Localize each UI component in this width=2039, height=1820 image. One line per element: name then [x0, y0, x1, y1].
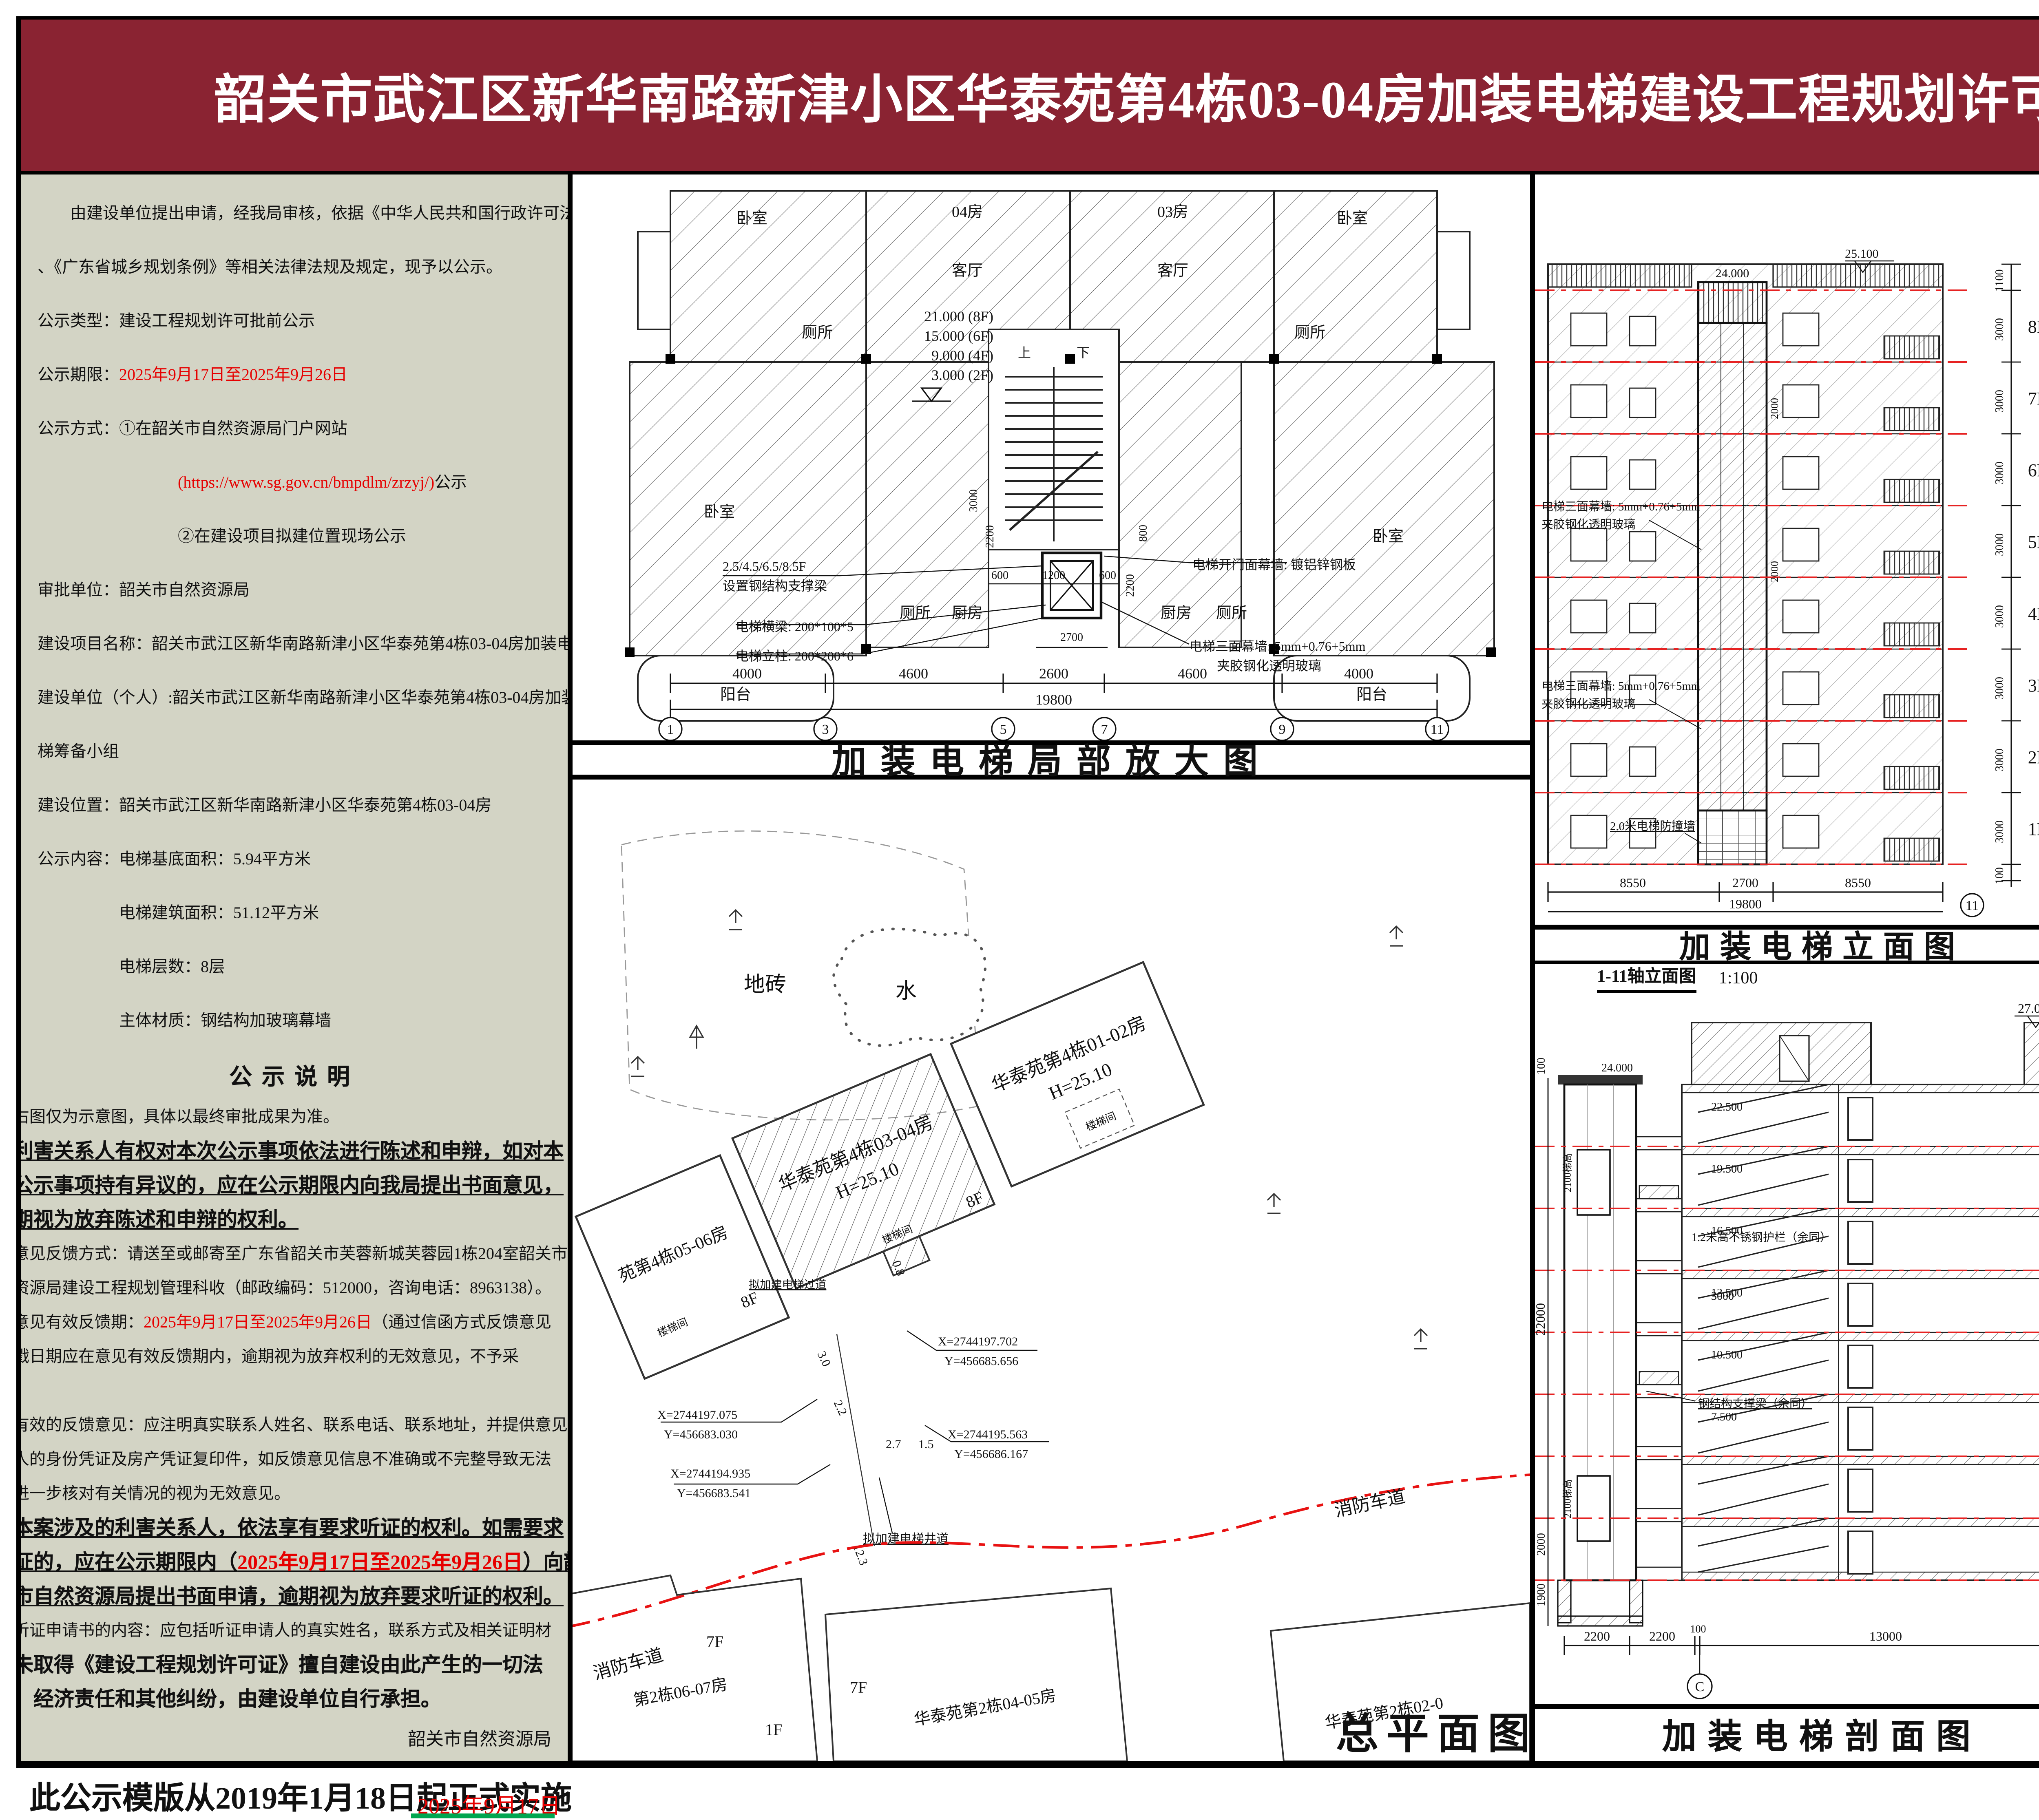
annotation: 电梯横梁: 200*100*5 — [736, 619, 854, 634]
shaft-top-level: 24.000 — [1716, 267, 1749, 280]
building-0304: 华泰苑第4栋03-04房 H=25.10 楼梯间 8F — [732, 1054, 1004, 1312]
building-0102: 华泰苑第4栋01-02房 H=25.10 楼梯间 — [951, 962, 1204, 1186]
floor-label: 7F — [2028, 389, 2039, 409]
dim-label: 2200 — [984, 525, 996, 548]
elevation-title: 加装电梯立面图 — [1535, 925, 2039, 964]
elevation-drawing: 24.000 25.100 电梯三面幕墙: 5mm+0.76+5mm 夹胶钢化透… — [1535, 174, 2039, 925]
dim-label: 1200 — [1042, 569, 1065, 582]
elevation-svg: 24.000 25.100 电梯三面幕墙: 5mm+0.76+5mm 夹胶钢化透… — [1535, 174, 2039, 925]
stair-up-label: 上 — [1018, 345, 1031, 360]
statement-heading: 公示说明 — [21, 1058, 568, 1101]
floor-label: 8F — [2028, 317, 2039, 337]
dim-label: 3000 — [1993, 820, 2006, 843]
car-dim: 2100梯高 — [1562, 1479, 1573, 1518]
frame-left — [16, 16, 21, 1768]
statement-line: 人的身份凭证及房产凭证复印件，如反馈意见信息不准确或不完整导致无法 — [16, 1443, 568, 1478]
axis-bubble: 9 — [1279, 722, 1286, 737]
hearing-date: 2025年9月17日至2025年9月26日 — [237, 1551, 523, 1574]
axis-dim: 4000 — [1344, 665, 1373, 682]
statement-line: 公示事项持有异议的，应在公示期限内向我局提出书面意见， — [16, 1169, 568, 1204]
dim-label: 100 — [1535, 1058, 1548, 1075]
section-drawing: 27.000 — [1535, 993, 2039, 1704]
axis-total: 19800 — [1035, 691, 1072, 708]
notice-line: 审批单位：韶关市自然资源局 — [38, 564, 561, 618]
frame-bottom — [16, 1761, 2039, 1768]
dim-label: 600 — [991, 569, 1008, 582]
notice-line: (https://www.sg.gov.cn/bmpdlm/zrzyj/)公示 — [38, 457, 561, 510]
axis-bubble: C — [1695, 1679, 1705, 1694]
floor-label: 3F — [2028, 676, 2039, 696]
dim-label: 600 — [1099, 569, 1116, 582]
dim-label: 3000 — [1993, 390, 2006, 413]
site-plan-drawing: 地砖 水 华泰苑第4栋01-02房 H=25.10 楼梯间 — [573, 780, 1530, 1761]
statement-line: 未取得《建设工程规划许可证》擅自建设由此产生的一切法 — [16, 1649, 568, 1683]
elevator-shaft — [1698, 282, 1767, 864]
title-banner: 韶关市武江区新华南路新津小区华泰苑第4栋03-04房加装电梯建设工程规划许可批前… — [16, 16, 2039, 174]
hearing-tail: ）向韶 — [523, 1551, 573, 1574]
dim-label: 3000 — [967, 489, 980, 512]
coord-y: Y=456685.656 — [944, 1354, 1018, 1368]
coord-x: X=2744197.075 — [657, 1408, 737, 1422]
car-dim: 2100梯高 — [1562, 1153, 1573, 1192]
annotation: 1.2米高不锈钢护栏（余同） — [1692, 1231, 1831, 1244]
room-label: 04房 — [952, 203, 983, 221]
axis-bubble: 1 — [667, 722, 674, 737]
dim-label: 3000 — [1993, 605, 2006, 628]
statement-signature: 韶关市自然资源局 — [408, 1725, 551, 1752]
annotation: 电梯三面幕墙: 5mm+0.76+5mm — [1541, 680, 1700, 693]
dim-label: 2200 — [1124, 574, 1137, 597]
hut-icon — [690, 1026, 703, 1049]
dim-label: 2000 — [1769, 561, 1780, 582]
dim-label: 8550 — [1620, 875, 1646, 890]
feedback-tail: （通过信函方式反馈意见 — [372, 1314, 551, 1332]
period-date: 2025年9月17日至2025年9月26日 — [119, 367, 347, 385]
notice-line: 建设单位（个人）:韶关市武江区新华南路新津小区华泰苑第4栋03-04房加装电 — [38, 672, 561, 726]
coord-y: Y=456686.167 — [954, 1447, 1028, 1461]
dim-label: 3000 — [1993, 462, 2006, 484]
axis-dim: 4000 — [732, 665, 762, 682]
dim-label: 2200 — [1584, 1629, 1610, 1643]
statement-line: 。 — [16, 1375, 568, 1409]
notice-url-tail: 公示 — [434, 475, 467, 493]
room-label: 厨房 — [1161, 605, 1192, 622]
dim-label: 3000 — [1993, 677, 2006, 700]
statement-line: 利害关系人有权对本次公示事项依法进行陈述和申辩，如对本 — [16, 1135, 568, 1169]
statement-line: 有效的反馈意见：应注明真实联系人姓名、联系电话、联系地址，并提供意见 — [16, 1409, 568, 1443]
floor-count: 7F — [706, 1632, 723, 1651]
dim-label: 3000 — [1993, 533, 2006, 556]
dim-label: 2.2 — [831, 1398, 850, 1418]
feedback-date: 2025年9月17日至2025年9月26日 — [144, 1314, 372, 1332]
level-label: 3.000 (2F) — [931, 367, 993, 383]
page-title: 韶关市武江区新华南路新津小区华泰苑第4栋03-04房加装电梯建设工程规划许可批前… — [214, 58, 2039, 133]
room-label: 卧室 — [1337, 210, 1368, 227]
water-label: 水 — [896, 980, 917, 1003]
notice-statement: 公示说明 右图仅为示意图，具体以最终审批成果为准。 利害关系人有权对本次公示事项… — [21, 1058, 568, 1717]
notice-url: (https://www.sg.gov.cn/bmpdlm/zrzyj/) — [178, 475, 434, 493]
notice-line: 公示方式：①在韶关市自然资源局门户网站 — [38, 403, 561, 457]
coord-x: X=2744194.935 — [670, 1467, 750, 1480]
dim-label: 2700 — [1732, 875, 1758, 890]
corridor-label: 拟加建电梯过道 — [749, 1279, 826, 1291]
coord-x: X=2744197.702 — [938, 1335, 1018, 1348]
floor-label: 5F — [2028, 532, 2039, 552]
floor-count: 7F — [850, 1678, 867, 1696]
dim-label: 100 — [1993, 867, 2006, 884]
level-label: 15.000 (6F) — [924, 328, 993, 344]
elevation-subtitle: 1-11轴立面图 1:100 — [1535, 964, 2039, 993]
period-label: 公示期限： — [38, 367, 119, 385]
axis-dim: 4600 — [899, 665, 928, 682]
annotation: 夹胶钢化透明玻璃 — [1541, 698, 1635, 711]
dim-label: 2000 — [1535, 1533, 1548, 1556]
floor-plan-svg: 卧室 04房 03房 客厅 客厅 卧室 厕所 厕所 卧室 卧室 厕所 厨房 厨房… — [573, 174, 1530, 740]
annotation: 设置钢结构支撑梁 — [723, 579, 827, 593]
axis-dim: 2600 — [1039, 665, 1068, 682]
floor-label: 1F — [2028, 819, 2039, 839]
annotation: 3000 — [1711, 1290, 1734, 1303]
room-label: 客厅 — [952, 262, 983, 279]
annotation: 钢结构支撑梁（余同） — [1698, 1397, 1812, 1410]
coord-y: Y=456683.030 — [664, 1428, 738, 1441]
dim-line — [837, 1334, 874, 1546]
room-label: 03房 — [1157, 203, 1188, 221]
elevation-scale: 1:100 — [1719, 970, 1758, 987]
building-label: 华泰苑第2栋04-05房 — [913, 1686, 1058, 1729]
level-flag: 24.000 — [1601, 1062, 1633, 1074]
dim-label: 3000 — [1993, 318, 2006, 341]
dim-label: 3.0 — [815, 1349, 834, 1369]
axis-bubble: 11 — [1431, 722, 1444, 737]
notice-line: 电梯建筑面积：51.12平方米 — [38, 887, 561, 941]
room-label: 客厅 — [1157, 262, 1188, 279]
footer-date-underline — [411, 1813, 555, 1818]
room-label: 厕所 — [1216, 605, 1247, 622]
ground-label: 地砖 — [744, 973, 786, 996]
statement-line: 经济责任和其他纠纷，由建设单位自行承担。 — [16, 1683, 568, 1717]
dim-label: 13000 — [1869, 1629, 1902, 1643]
section-title: 加装电梯剖面图 — [1535, 1704, 2039, 1761]
statement-line: 证的，应在公示期限内（2025年9月17日至2025年9月26日）向韶 — [16, 1546, 568, 1580]
notice-line: 梯筹备小组 — [38, 726, 561, 780]
hearing-pre: 证的，应在公示期限内（ — [16, 1551, 237, 1574]
axis-bubble: 3 — [822, 722, 829, 737]
notice-line: 电梯层数：8层 — [38, 941, 561, 995]
coord-y: Y=456683.541 — [677, 1486, 751, 1500]
roof-level: 25.100 — [1845, 247, 1879, 261]
statement-line: 期视为放弃陈述和申辩的权利。 — [16, 1204, 568, 1238]
section-svg: 27.000 — [1535, 993, 2039, 1704]
notice-intro: 由建设单位提出申请，经我局审核，依据《中华人民共和国行政许可法》 、《广东省城乡… — [21, 174, 568, 1049]
notice-line: 由建设单位提出申请，经我局审核，依据《中华人民共和国行政许可法》 — [38, 188, 561, 241]
notice-line: 建设项目名称：韶关市武江区新华南路新津小区华泰苑第4栋03-04房加装电梯 — [38, 618, 561, 672]
notice-line: 公示内容：电梯基底面积：5.94平方米 — [38, 833, 561, 887]
annotation: 电梯立柱: 200*200*6 — [736, 649, 854, 663]
notice-line: ②在建设项目拟建位置现场公示 — [38, 510, 561, 564]
dim-label: 2200 — [1649, 1629, 1675, 1643]
annotation: 夹胶钢化透明玻璃 — [1541, 518, 1635, 531]
level-flag: 27.000 — [2018, 1001, 2039, 1016]
bridges — [1636, 1137, 1682, 1580]
notice-panel: 由建设单位提出申请，经我局审核，依据《中华人民共和国行政许可法》 、《广东省城乡… — [16, 174, 573, 1761]
elevation-subtitle-text: 1-11轴立面图 — [1597, 964, 1696, 993]
room-label: 厕所 — [802, 324, 833, 341]
annotation: 电梯三面幕墙: 5mm+0.76+5mm — [1189, 639, 1366, 654]
statement-line: 资源局建设工程规划管理科收（邮政编码：512000，咨询电话：8963138）。 — [16, 1272, 568, 1306]
dim-label: 19800 — [1729, 897, 1762, 911]
notice-line: 、《广东省城乡规划条例》等相关法律法规及规定，现予以公示。 — [38, 241, 561, 295]
dim-label: 1900 — [1535, 1584, 1548, 1606]
coordinate-callouts: X=2744197.702 Y=456685.656 X=2744197.075… — [657, 1331, 1049, 1500]
stair-down-label: 下 — [1077, 345, 1090, 360]
floor-label: 2F — [2028, 747, 2039, 767]
notice-sheet: 韶关市武江区新华南路新津小区华泰苑第4栋03-04房加装电梯建设工程规划许可批前… — [0, 0, 2039, 1820]
room-label: 厕所 — [1294, 324, 1325, 341]
dim-label: 2.7 — [886, 1438, 901, 1451]
dim-label: 2700 — [1060, 631, 1083, 644]
building-label: 第2栋06-07房 — [632, 1675, 729, 1710]
shaft-leader — [879, 1478, 892, 1533]
dim-label: 22000 — [1535, 1303, 1548, 1336]
annotation: 电梯开门面幕墙: 镀铝锌钢板 — [1192, 557, 1356, 572]
statement-line: 戳日期应在意见有效反馈期内，逾期视为放弃权利的无效意见，不予采 — [16, 1341, 568, 1375]
floor-label: 6F — [2028, 460, 2039, 480]
statement-line: 进一步核对有关情况的视为无效意见。 — [16, 1478, 568, 1512]
statement-line: 意见反馈方式：请送至或邮寄至广东省韶关市芙蓉新城芙蓉园1栋204室韶关市 — [16, 1238, 568, 1272]
dim-label: 800 — [1137, 525, 1150, 542]
notice-line: 建设位置：韶关市武江区新华南路新津小区华泰苑第4栋03-04房 — [38, 780, 561, 833]
dim-label: 1100 — [1993, 269, 2006, 292]
notice-line: 主体材质：钢结构加玻璃幕墙 — [38, 995, 561, 1049]
site-plan-svg: 地砖 水 华泰苑第4栋01-02房 H=25.10 楼梯间 — [573, 780, 1530, 1761]
floor-label: 4F — [2028, 604, 2039, 624]
landing-level: 22.500 — [1711, 1101, 1743, 1113]
coord-x: X=2744195.563 — [948, 1428, 1028, 1441]
room-label: 阳台 — [1356, 686, 1387, 703]
axis-dim: 4600 — [1178, 665, 1207, 682]
floor-plan-title: 加装电梯局部放大图 — [573, 740, 1532, 780]
notice-line: 公示期限：2025年9月17日至2025年9月26日 — [38, 349, 561, 403]
annotation: 夹胶钢化透明玻璃 — [1217, 658, 1321, 673]
room-label: 阳台 — [720, 686, 751, 703]
feedback-label: 意见有效反馈期： — [16, 1314, 144, 1332]
statement-line: 意见有效反馈期：2025年9月17日至2025年9月26日（通过信函方式反馈意见 — [16, 1306, 568, 1341]
axis-bubble: 7 — [1101, 722, 1108, 737]
dim-label: 3000 — [1993, 749, 2006, 771]
landing-level: 19.500 — [1711, 1163, 1743, 1175]
statement-line: 听证申请书的内容：应包括听证申请人的真实姓名，联系方式及相关证明材 — [16, 1615, 568, 1649]
landing-level: 10.500 — [1711, 1349, 1743, 1361]
room-label: 卧室 — [1373, 528, 1404, 545]
floor-plan-drawing: 卧室 04房 03房 客厅 客厅 卧室 厕所 厕所 卧室 卧室 厕所 厨房 厨房… — [573, 174, 1530, 740]
fire-lane-label: 消防车道 — [1333, 1486, 1407, 1521]
site-plan-title: 总平面图 — [1336, 1711, 1530, 1758]
landing-level: 7.500 — [1711, 1411, 1737, 1423]
room-label: 卧室 — [736, 210, 767, 227]
notice-line: 公示类型：建设工程规划许可批前公示 — [38, 295, 561, 349]
room-label: 卧室 — [704, 504, 735, 521]
axis-bubble: 5 — [1000, 722, 1007, 737]
dim-label: 1.5 — [918, 1438, 934, 1451]
statement-line: 市自然资源局提出书面申请，逾期视为放弃要求听证的权利。 — [16, 1580, 568, 1615]
annotation: 2.5/4.5/6.5/8.5F — [723, 559, 806, 574]
statement-line: 右图仅为示意图，具体以最终审批成果为准。 — [16, 1101, 568, 1135]
dim-label: 100 — [1690, 1623, 1706, 1635]
dim-label: 8550 — [1845, 875, 1871, 890]
annotation: 电梯三面幕墙: 5mm+0.76+5mm — [1541, 500, 1700, 513]
level-label: 21.000 (8F) — [924, 308, 993, 325]
divider — [1530, 174, 1535, 1761]
dim-label: 2000 — [1769, 398, 1780, 419]
annotation: 2.0米电梯防撞墙 — [1610, 820, 1695, 833]
level-label: 9.000 (4F) — [931, 347, 993, 364]
axis-bubble: 11 — [1966, 898, 1979, 913]
fire-lane-label: 消防车道 — [591, 1645, 666, 1684]
statement-line: 本案涉及的利害关系人，依法享有要求听证的权利。如需要求 — [16, 1512, 568, 1546]
floor-count: 1F — [765, 1721, 782, 1739]
